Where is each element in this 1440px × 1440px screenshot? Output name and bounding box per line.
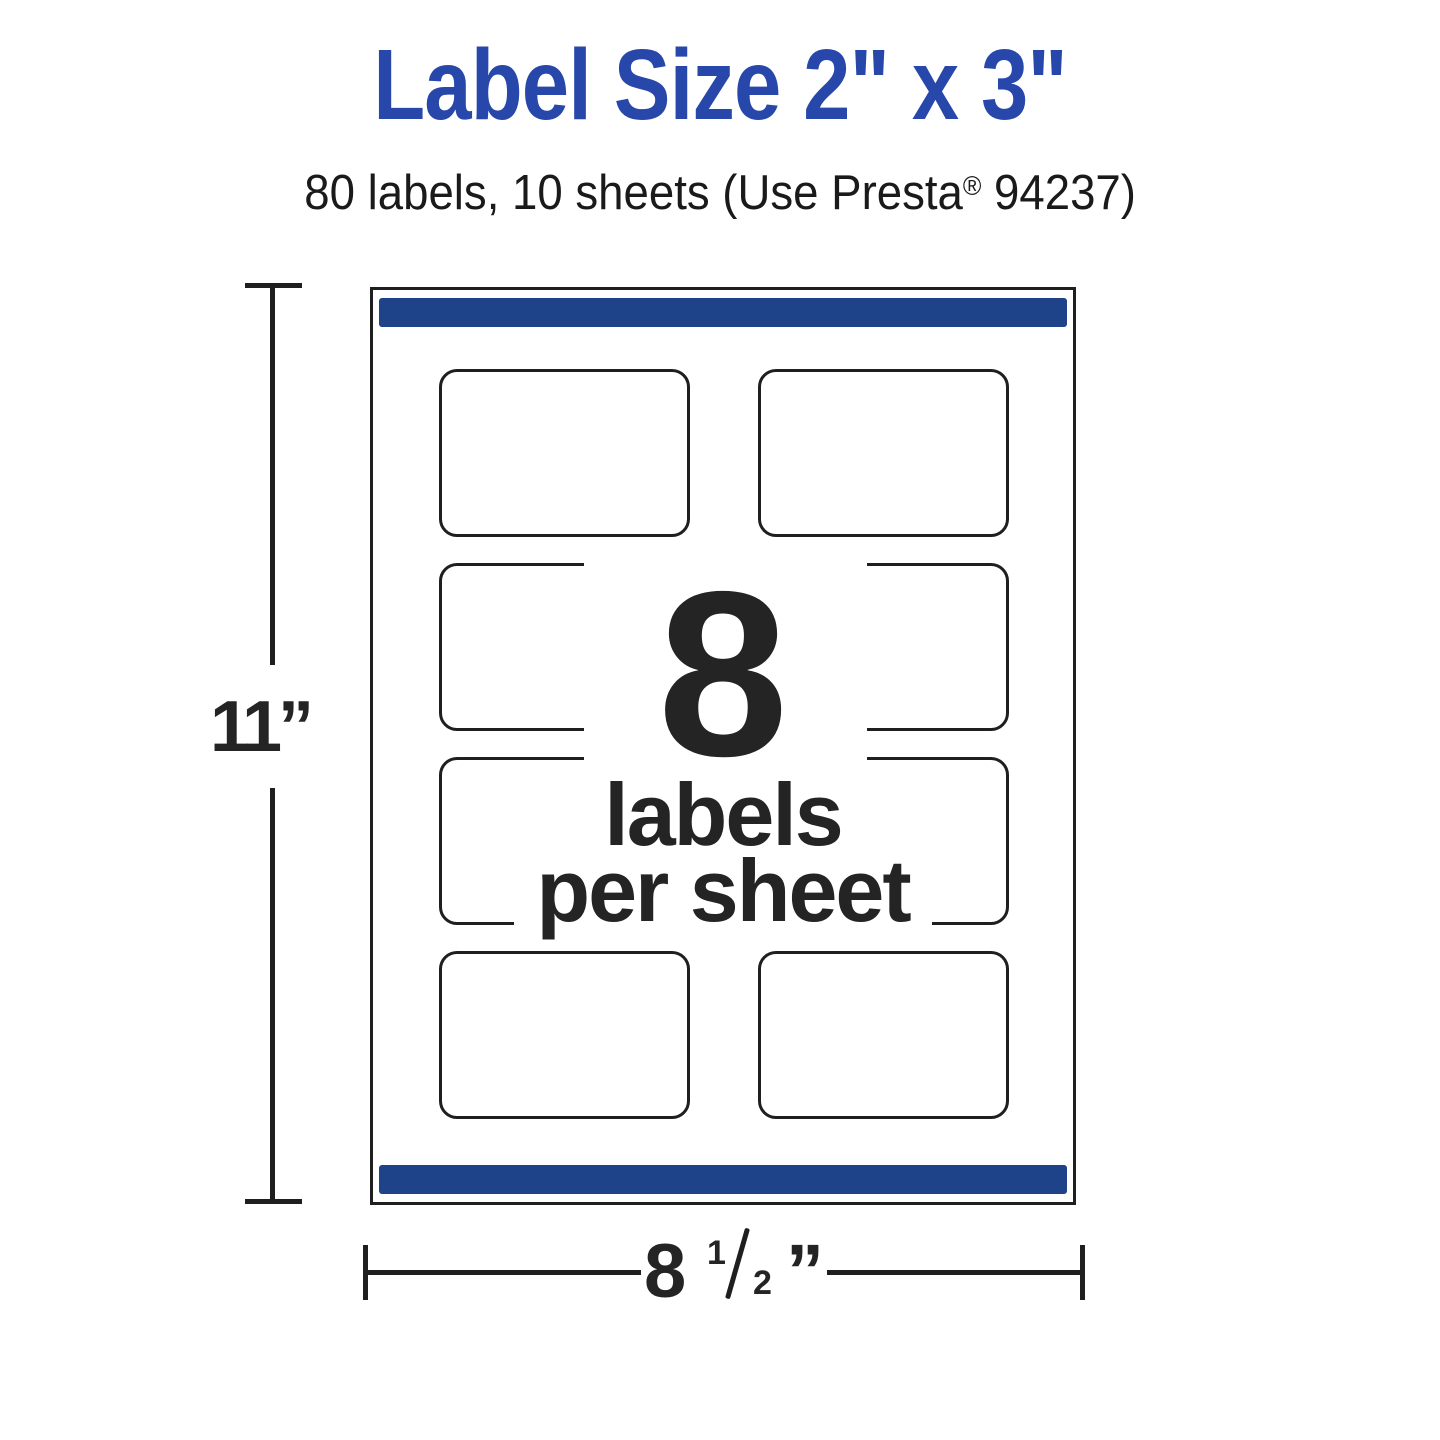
labels-caption-line2-text: per sheet: [514, 847, 931, 935]
width-dim-frac-numerator: 1: [707, 1236, 726, 1270]
sheet-bottom-blue-bar: [379, 1165, 1067, 1194]
height-dim-lower-segment: [270, 788, 275, 1203]
registered-mark: ®: [963, 171, 982, 201]
label-cell: [439, 369, 690, 537]
height-dim-bottom-cap: [245, 1199, 302, 1204]
height-dim-label: 11”: [150, 691, 370, 763]
label-sheet: 8 labels per sheet: [370, 287, 1076, 1205]
label-cell: [439, 951, 690, 1119]
width-dim-inch-mark: ”: [786, 1234, 824, 1310]
width-dim-right-segment: [827, 1270, 1083, 1275]
page-subtitle-text: 80 labels, 10 sheets (Use Presta® 94237): [304, 169, 1136, 218]
fraction-slash: [725, 1228, 750, 1300]
labels-count: 8: [373, 556, 1073, 791]
page-title-text: Label Size 2" x 3": [373, 35, 1067, 135]
subtitle-suffix: 94237): [981, 166, 1136, 220]
label-cell: [758, 369, 1009, 537]
page-title: Label Size 2" x 3": [0, 35, 1440, 135]
label-cell: [758, 951, 1009, 1119]
subtitle-prefix: 80 labels, 10 sheets (Use Presta: [304, 166, 963, 220]
width-dim-whole-number: 8: [644, 1234, 686, 1310]
width-dim-left-segment: [365, 1270, 641, 1275]
width-dim-right-cap: [1080, 1245, 1085, 1300]
width-dim-frac-denominator: 2: [753, 1266, 772, 1300]
labels-caption-line2: per sheet: [373, 847, 1073, 935]
label-size-diagram: Label Size 2" x 3" 80 labels, 10 sheets …: [0, 0, 1440, 1440]
sheet-top-blue-bar: [379, 298, 1067, 327]
page-subtitle: 80 labels, 10 sheets (Use Presta® 94237): [0, 169, 1440, 218]
height-dim-upper-segment: [270, 286, 275, 665]
